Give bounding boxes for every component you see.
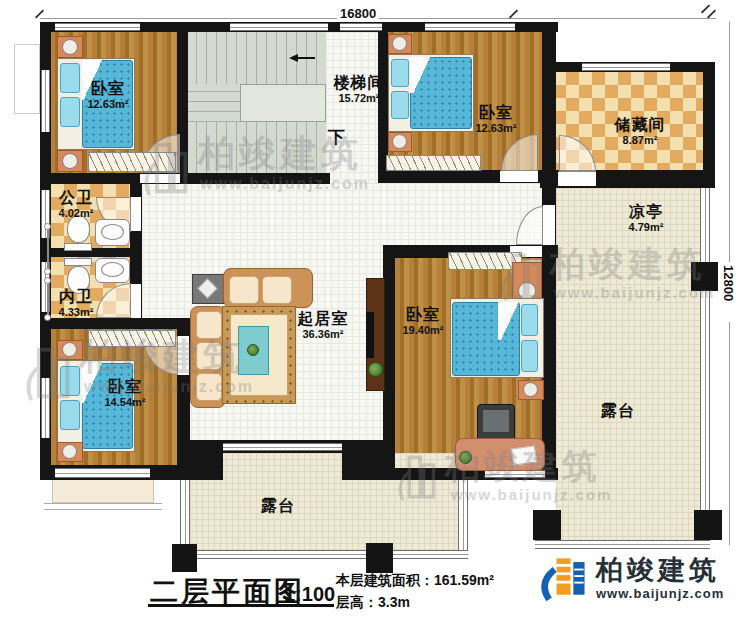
terrace-right-railing-side <box>700 188 710 540</box>
column <box>366 543 393 573</box>
door-gap-pavilion <box>543 205 555 245</box>
wall-bathroom-bottom <box>40 318 190 329</box>
room-name: 凉亭 <box>610 203 682 221</box>
room-area: 8.87m² <box>604 134 676 146</box>
room-name: 露台 <box>254 497 302 515</box>
sofa-cushion <box>196 311 222 339</box>
window-stairwell-top <box>230 23 328 31</box>
pier-left <box>180 440 223 480</box>
towel-rail-end <box>44 223 51 230</box>
pillow <box>60 400 80 430</box>
watermark-text: 柏竣建筑 <box>80 338 254 375</box>
toilet-tank <box>64 258 92 266</box>
room-area: 12.63m² <box>72 98 144 110</box>
door-gap-private-bath <box>131 284 141 318</box>
title-underline <box>148 604 334 607</box>
plan-scale: 1:100 <box>284 583 335 606</box>
pillow <box>391 91 409 119</box>
room-label-storage: 储藏间 8.87m² <box>604 116 676 146</box>
watermark-text: 柏竣建筑 <box>198 135 370 172</box>
watermark-logo-icon <box>22 342 74 404</box>
room-name: 露台 <box>594 402 642 420</box>
room-label-terrace-right: 露台 <box>594 402 642 420</box>
monitor-screen <box>483 410 509 432</box>
room-name: 卧室 <box>458 104 534 122</box>
pier-right <box>342 440 392 480</box>
watermark: 柏竣建筑 www.baijunjz.com <box>22 338 254 395</box>
lamp-icon <box>523 382 538 397</box>
dimension-right-value: 12800 <box>721 262 736 322</box>
living-room-floor-upper <box>142 183 542 245</box>
towel-rail <box>47 228 49 270</box>
lamp-icon <box>62 444 77 459</box>
room-area: 4.33m² <box>47 306 105 318</box>
lamp-icon <box>392 36 407 51</box>
watermark: 柏竣建筑 www.baijunjz.com <box>140 135 370 192</box>
floor-area-info: 本层建筑面积：161.59m² <box>336 572 494 590</box>
room-area: 36.36m² <box>283 328 363 340</box>
window-landing-top <box>340 23 382 31</box>
room-area: 4.79m² <box>610 221 682 233</box>
room-area: 19.40m² <box>386 324 460 336</box>
window-bedroom2-top <box>425 23 515 31</box>
tv-icon <box>366 312 374 358</box>
room-name: 楼梯间 <box>326 74 392 92</box>
stairs-direction-line <box>297 57 315 59</box>
terrace-right-railing-front <box>535 540 710 549</box>
watermark-url: www.baijunjz.com <box>84 379 254 395</box>
floor-plan: 下 <box>0 0 750 617</box>
room-area: 14.54m² <box>88 396 162 408</box>
room-name: 起居室 <box>283 310 363 328</box>
watermark-url: www.baijunjz.com <box>554 285 715 300</box>
room-label-bedroom-right: 卧室 19.40m² <box>386 306 460 336</box>
room-area: 15.72m² <box>326 92 392 104</box>
pillow <box>521 340 538 372</box>
column <box>172 544 197 572</box>
lamp-icon <box>62 39 78 55</box>
bed-sheet-fold <box>498 302 520 340</box>
room-name: 储藏间 <box>604 116 676 134</box>
terrace-bottom-railing-front <box>180 550 468 559</box>
column <box>694 510 722 540</box>
sofa-cushion <box>229 276 259 304</box>
window-bedroom1-left <box>41 70 50 132</box>
room-label-stairwell: 楼梯间 15.72m² <box>326 74 392 104</box>
towel-rail-end <box>44 277 51 284</box>
wardrobe <box>386 155 481 171</box>
room-name: 卧室 <box>72 80 144 98</box>
pillow <box>521 304 538 336</box>
window-storage-top <box>582 63 670 71</box>
bed-sheet-fold <box>410 57 432 93</box>
room-name: 内卫 <box>47 288 105 306</box>
window-bay <box>55 468 150 478</box>
door-gap-storage <box>558 172 596 186</box>
window-living-bottom <box>223 443 342 451</box>
watermark-url: www.baijunjz.com <box>451 487 612 502</box>
watermark: 柏竣建筑 www.baijunjz.com <box>395 448 612 502</box>
watermark-text: 柏竣建筑 <box>445 448 612 483</box>
stairs-treads-return <box>186 84 240 122</box>
pillow <box>391 59 409 87</box>
lamp-icon <box>392 134 407 149</box>
room-label-pavilion: 凉亭 4.79m² <box>610 203 682 233</box>
door-gap-bedroom2 <box>500 171 538 182</box>
plant-icon <box>368 362 383 377</box>
room-label-terrace-bottom: 露台 <box>254 497 302 515</box>
room-label-bedroom-top-right: 卧室 12.63m² <box>458 104 534 134</box>
window-bedroom1-top <box>55 23 140 31</box>
column <box>533 510 561 540</box>
brand-name: 柏竣建筑 <box>596 552 720 588</box>
dimension-extension-box <box>14 44 40 114</box>
room-label-living-room: 起居室 36.36m² <box>283 310 363 340</box>
room-area: 12.63m² <box>458 122 534 134</box>
watermark-logo-icon <box>395 450 439 504</box>
dimension-tick <box>701 4 710 13</box>
room-area: 4.02m² <box>47 207 105 219</box>
bay-window-sill <box>44 503 162 510</box>
sofa-cushion <box>262 276 292 304</box>
dimension-top-value: 16800 <box>337 6 379 21</box>
watermark-text: 柏竣建筑 <box>550 246 715 281</box>
room-label-private-bathroom: 内卫 4.33m² <box>47 288 105 318</box>
watermark-url: www.baijunjz.com <box>200 176 370 192</box>
room-name: 公卫 <box>47 189 105 207</box>
door-gap-public-bath <box>131 197 141 231</box>
watermark-logo-icon <box>140 137 192 199</box>
wall-storage-right <box>703 62 715 188</box>
brand-logo-icon <box>536 549 592 605</box>
sink-basin <box>101 262 124 277</box>
stairs-direction-arrow-icon <box>289 54 298 62</box>
brand-url: www.baijunjz.com <box>596 586 724 601</box>
watermark-logo-icon <box>498 248 544 304</box>
watermark: 柏竣建筑 www.baijunjz.com <box>498 246 715 300</box>
sink-basin <box>101 224 124 240</box>
towel-rail-end <box>44 268 51 275</box>
stairs-landing-void <box>240 84 326 122</box>
floor-height-info: 层高：3.3m <box>336 594 410 612</box>
lamp-icon <box>62 153 78 169</box>
room-name: 卧室 <box>386 306 460 324</box>
toilet-tank <box>64 243 92 251</box>
room-label-public-bathroom: 公卫 4.02m² <box>47 189 105 219</box>
room-label-bedroom-top-left: 卧室 12.63m² <box>72 80 144 110</box>
